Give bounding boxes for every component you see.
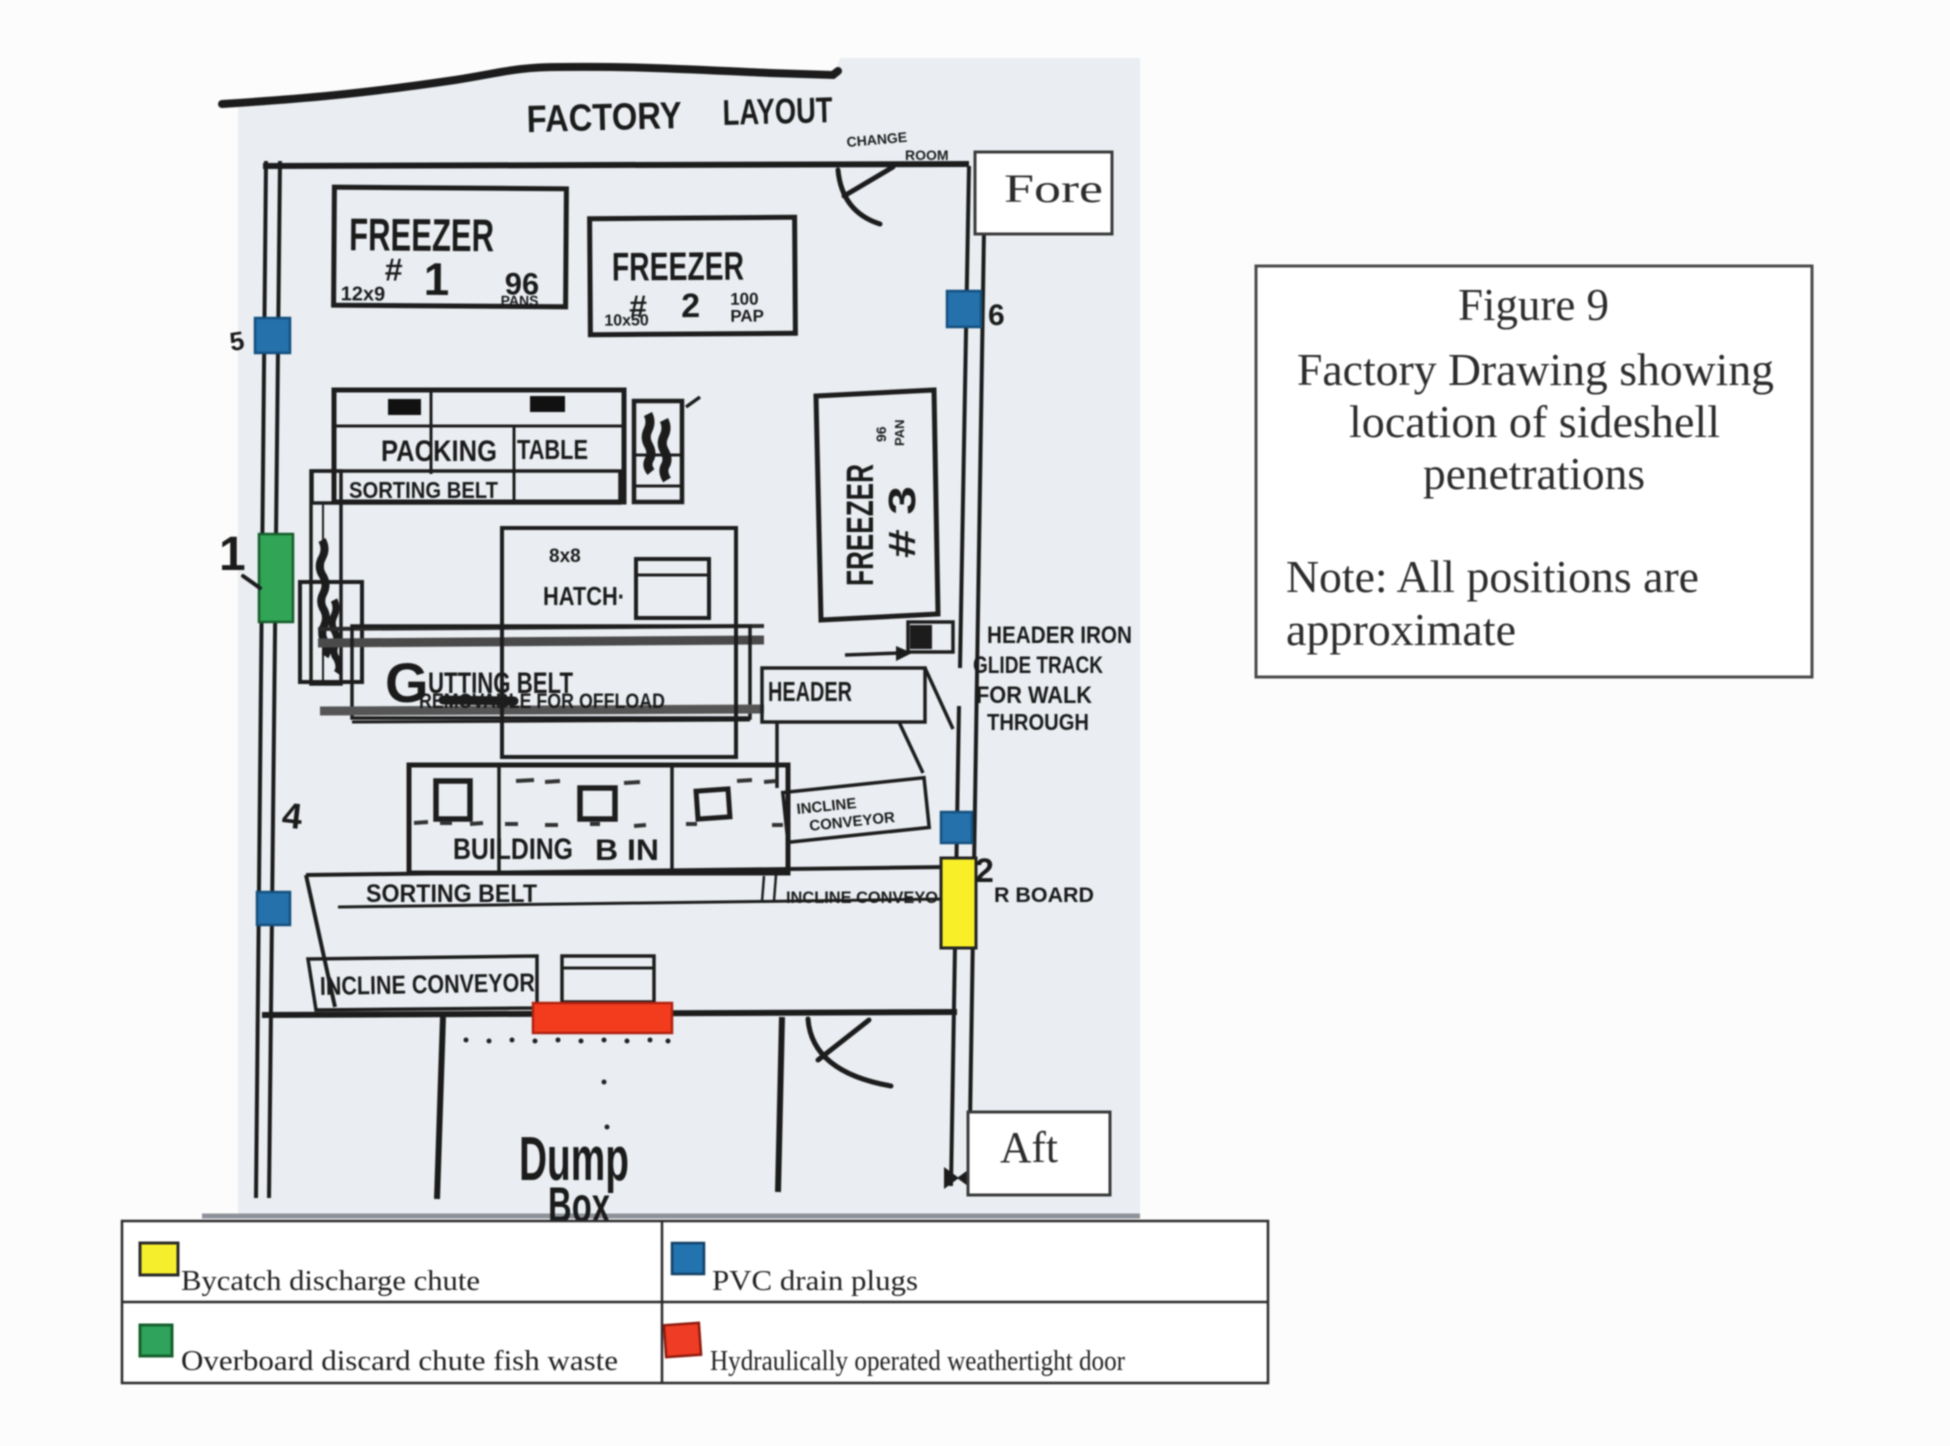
svg-text:6: 6 [988,299,1005,332]
svg-text:INCLINE CONVEYOR: INCLINE CONVEYOR [320,967,536,1001]
svg-text:FREEZER: FREEZER [349,208,494,261]
svg-text:2: 2 [681,287,700,325]
svg-text:HEADER IRON: HEADER IRON [987,622,1132,649]
svg-text:SORTING BELT: SORTING BELT [349,477,498,503]
svg-text:1: 1 [219,528,246,581]
svg-text:ROOM: ROOM [905,147,949,163]
svg-text:THROUGH: THROUGH [987,709,1089,735]
svg-text:LAYOUT: LAYOUT [722,89,833,133]
svg-text:FACTORY: FACTORY [526,95,682,141]
svg-text:Aft: Aft [1000,1123,1058,1172]
svg-text:FOR WALK: FOR WALK [976,682,1093,709]
svg-text:12x9: 12x9 [341,283,386,305]
svg-text:# 3: # 3 [882,486,924,558]
svg-text:PAN: PAN [892,420,907,446]
svg-text:FREEZER: FREEZER [612,245,744,290]
svg-text:penetrations: penetrations [1423,448,1645,499]
svg-text:PANS: PANS [501,292,539,308]
svg-text:FREEZER: FREEZER [840,464,882,586]
svg-text:Bycatch discharge chute: Bycatch discharge chute [181,1266,480,1297]
svg-text:Overboard discard chute fish w: Overboard discard chute fish waste [181,1346,618,1377]
svg-text:96: 96 [873,426,889,442]
svg-text:2: 2 [975,852,994,890]
svg-text:PACKING: PACKING [381,435,497,468]
svg-text:B IN: B IN [595,834,659,867]
svg-text:R BOARD: R BOARD [994,884,1094,907]
svg-text:4: 4 [280,794,304,837]
svg-text:location of sideshell: location of sideshell [1349,396,1720,447]
svg-text:INCLINE CONVEYO: INCLINE CONVEYO [786,888,938,907]
svg-text:HATCH·: HATCH· [543,581,625,611]
svg-text:Figure 9: Figure 9 [1458,279,1609,330]
svg-text:BUILDING: BUILDING [453,833,573,866]
svg-text:Hydraulically operated weather: Hydraulically operated weathertight door [710,1346,1126,1377]
svg-text:SORTING BELT: SORTING BELT [366,880,537,908]
svg-text:Note: All positions are: Note: All positions are [1286,551,1699,602]
svg-text:10x50: 10x50 [604,312,649,329]
svg-text:8x8: 8x8 [549,546,581,567]
svg-text:PAP: PAP [730,306,764,325]
svg-text:#: # [385,252,403,288]
svg-text:approximate: approximate [1286,604,1516,655]
svg-text:PVC drain plugs: PVC drain plugs [712,1266,918,1297]
svg-text:1: 1 [424,253,450,305]
svg-text:HEADER: HEADER [768,676,852,707]
svg-text:TABLE: TABLE [517,434,588,465]
svg-text:Fore: Fore [1004,166,1103,211]
svg-text:Factory Drawing showing: Factory Drawing showing [1297,344,1774,395]
svg-text:GLIDE TRACK: GLIDE TRACK [973,652,1104,679]
